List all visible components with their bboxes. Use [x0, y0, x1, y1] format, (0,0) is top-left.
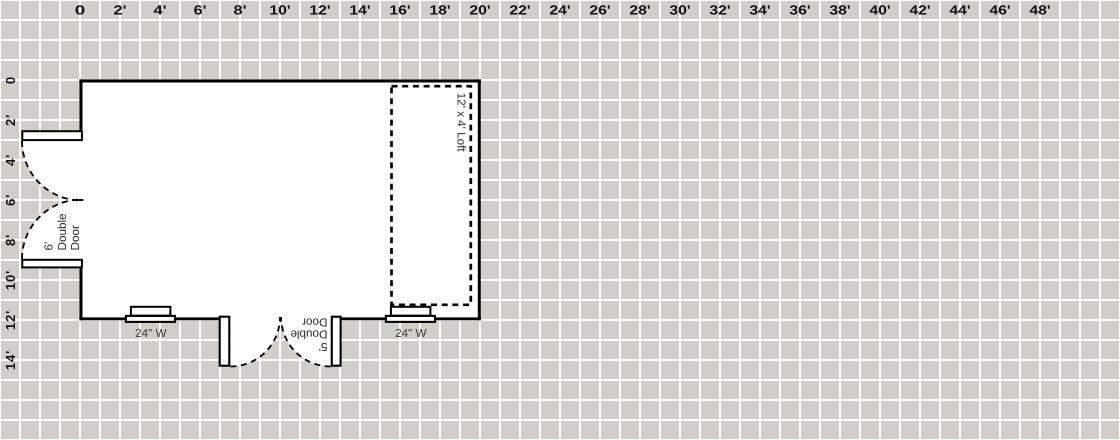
- svg-text:48': 48': [1029, 3, 1050, 18]
- svg-text:Door: Door: [69, 225, 82, 250]
- svg-text:26': 26': [589, 3, 610, 18]
- svg-text:44': 44': [949, 3, 970, 18]
- svg-text:4': 4': [3, 154, 18, 166]
- svg-text:36': 36': [789, 3, 810, 18]
- svg-text:34': 34': [749, 3, 770, 18]
- svg-text:14': 14': [3, 350, 18, 370]
- svg-text:28': 28': [629, 3, 650, 18]
- svg-text:24" W: 24" W: [395, 327, 426, 340]
- svg-text:18': 18': [429, 3, 450, 18]
- svg-text:24': 24': [549, 3, 570, 18]
- svg-text:12' x 4' Loft: 12' x 4' Loft: [455, 93, 468, 153]
- svg-text:40': 40': [869, 3, 890, 18]
- svg-text:2': 2': [3, 114, 18, 126]
- svg-text:6': 6': [43, 242, 56, 251]
- svg-text:32': 32': [709, 3, 730, 18]
- svg-text:46': 46': [989, 3, 1010, 18]
- svg-text:6': 6': [194, 3, 207, 18]
- svg-text:8': 8': [234, 3, 247, 18]
- svg-text:2': 2': [114, 3, 127, 18]
- svg-text:14': 14': [349, 3, 370, 18]
- svg-text:Double: Double: [56, 213, 69, 250]
- svg-text:Door: Door: [302, 315, 327, 328]
- svg-text:5': 5': [319, 340, 328, 353]
- svg-text:16': 16': [389, 3, 410, 18]
- svg-text:38': 38': [829, 3, 850, 18]
- svg-text:6': 6': [3, 194, 18, 206]
- svg-text:4': 4': [154, 3, 167, 18]
- svg-text:0: 0: [75, 3, 86, 18]
- svg-text:20': 20': [469, 3, 490, 18]
- svg-text:10': 10': [269, 3, 290, 18]
- svg-text:24" W: 24" W: [135, 327, 166, 340]
- svg-text:12': 12': [3, 310, 18, 330]
- svg-text:10': 10': [3, 270, 18, 290]
- svg-text:42': 42': [909, 3, 930, 18]
- svg-text:8': 8': [3, 234, 18, 246]
- svg-text:22': 22': [509, 3, 530, 18]
- svg-text:Double: Double: [290, 327, 327, 340]
- svg-text:12': 12': [309, 3, 330, 18]
- svg-text:0: 0: [3, 76, 18, 84]
- svg-text:30': 30': [669, 3, 690, 18]
